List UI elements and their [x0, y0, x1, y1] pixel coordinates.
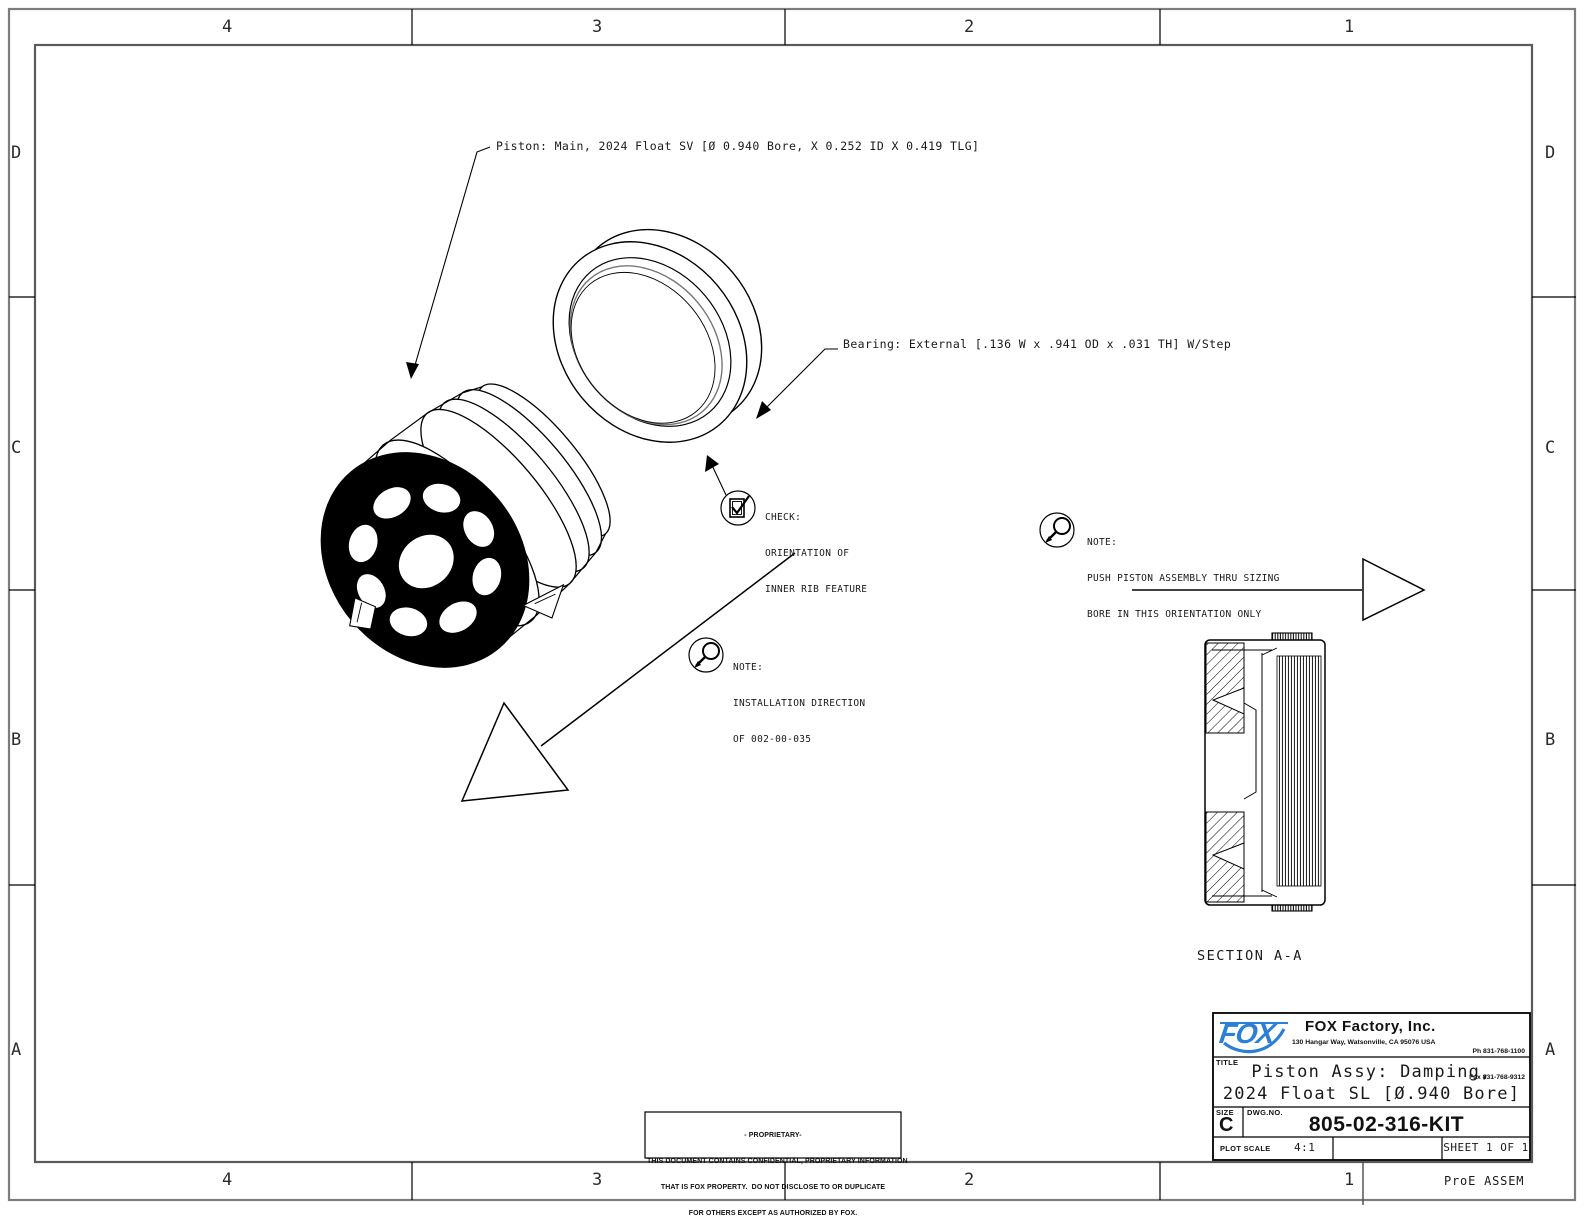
check-note-label: CHECK:: [765, 512, 867, 524]
proprietary-line3: THAT IS FOX PROPERTY. DO NOT DISCLOSE TO…: [647, 1184, 899, 1193]
check-note-line2: INNER RIB FEATURE: [765, 584, 867, 596]
magnifier-icon: [1040, 513, 1074, 547]
check-icon: [721, 491, 755, 525]
zone-col-3-top: 3: [592, 17, 602, 37]
push-note-line2: BORE IN THIS ORIENTATION ONLY: [1087, 609, 1280, 621]
proprietary-line2: THIS DOCUMENT CONTAINS CONFIDENTIAL, PRO…: [647, 1158, 899, 1167]
proprietary-line1: - PROPRIETARY-: [647, 1132, 899, 1141]
drawing-sheet: FOX 4 3 2 1 4 3 2 1 D C B A D C B A Pist…: [0, 0, 1584, 1224]
zone-row-a-left: A: [11, 1040, 21, 1060]
zone-col-1-bottom: 1: [1344, 1170, 1354, 1190]
zone-row-d-left: D: [11, 143, 21, 163]
piston-callout: Piston: Main, 2024 Float SV [Ø 0.940 Bor…: [496, 139, 979, 153]
zone-row-b-left: B: [11, 730, 21, 750]
drawing-title-line2: 2024 Float SL [Ø.940 Bore]: [1213, 1084, 1530, 1104]
size-value: C: [1219, 1114, 1233, 1137]
zone-col-2-top: 2: [964, 17, 974, 37]
title-block-phone-line: Ph 831-768-1100: [1455, 1048, 1525, 1057]
push-note-label: NOTE:: [1087, 537, 1280, 549]
zone-row-c-right: C: [1545, 438, 1555, 458]
zone-col-4-top: 4: [222, 17, 232, 37]
zone-row-c-left: C: [11, 438, 21, 458]
fox-logo: FOX: [1218, 1018, 1288, 1051]
zone-col-3-bottom: 3: [592, 1170, 602, 1190]
check-note: CHECK: ORIENTATION OF INNER RIB FEATURE: [765, 488, 867, 620]
section-view: [1205, 633, 1325, 911]
dwg-number: 805-02-316-KIT: [1243, 1113, 1530, 1137]
zone-col-1-top: 1: [1344, 17, 1354, 37]
zone-row-b-right: B: [1545, 730, 1555, 750]
section-label: SECTION A-A: [1197, 948, 1303, 964]
title-block-address: 130 Hangar Way, Watsonville, CA 95076 US…: [1292, 1039, 1435, 1046]
cad-system-note: ProE ASSEM: [1444, 1174, 1524, 1188]
zone-col-4-bottom: 4: [222, 1170, 232, 1190]
sheet-label: SHEET 1 OF 1: [1442, 1141, 1530, 1154]
proprietary-line4: FOR OTHERS EXCEPT AS AUTHORIZED BY FOX.: [647, 1210, 899, 1219]
plot-scale-value: 4:1: [1294, 1141, 1315, 1154]
plot-scale-label: PLOT SCALE: [1220, 1144, 1271, 1153]
install-note-label: NOTE:: [733, 662, 865, 674]
push-note: NOTE: PUSH PISTON ASSEMBLY THRU SIZING B…: [1087, 513, 1280, 645]
check-note-line1: ORIENTATION OF: [765, 548, 867, 560]
zone-col-2-bottom: 2: [964, 1170, 974, 1190]
zone-row-d-right: D: [1545, 143, 1555, 163]
bearing-callout: Bearing: External [.136 W x .941 OD x .0…: [843, 337, 1231, 351]
push-note-line1: PUSH PISTON ASSEMBLY THRU SIZING: [1087, 573, 1280, 585]
drawing-title-line1: Piston Assy: Damping,: [1213, 1062, 1530, 1082]
proprietary-notice: - PROPRIETARY- THIS DOCUMENT CONTAINS CO…: [647, 1115, 899, 1224]
install-note: NOTE: INSTALLATION DIRECTION OF 002-00-0…: [733, 638, 865, 770]
install-note-line2: OF 002-00-035: [733, 734, 865, 746]
zone-row-a-right: A: [1545, 1040, 1555, 1060]
magnifier-icon: [689, 638, 723, 672]
title-block-company: FOX Factory, Inc.: [1305, 1018, 1436, 1035]
install-note-line1: INSTALLATION DIRECTION: [733, 698, 865, 710]
